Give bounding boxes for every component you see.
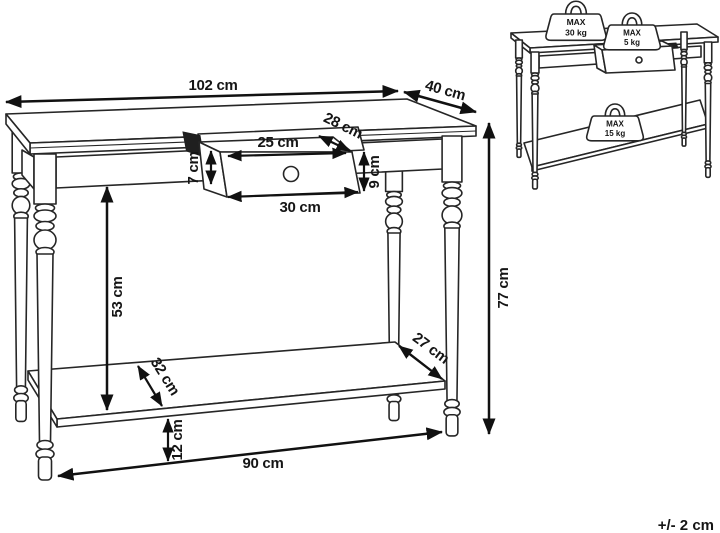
weight-drawer-max: MAX bbox=[623, 28, 641, 37]
front-right-leg bbox=[442, 136, 462, 436]
weight-shelf: MAX 15 kg bbox=[587, 104, 644, 141]
dim-label-total-height: 77 cm bbox=[495, 267, 512, 308]
dim-label-drawer-bottom-width: 30 cm bbox=[279, 199, 320, 216]
dim-label-shelf-floor-height: 12 cm bbox=[169, 419, 186, 460]
tolerance-note: +/- 2 cm bbox=[658, 517, 714, 533]
weight-drawer-value: 5 kg bbox=[624, 38, 640, 47]
weight-shelf-max: MAX bbox=[606, 119, 624, 128]
drawer-knob bbox=[284, 167, 299, 182]
weight-tabletop-max: MAX bbox=[567, 17, 586, 27]
dim-label-between-legs-width: 90 cm bbox=[242, 455, 283, 472]
weight-shelf-value: 15 kg bbox=[605, 129, 626, 138]
inset-back-left-leg bbox=[516, 40, 523, 157]
front-left-leg bbox=[34, 154, 56, 480]
inset-drawer-knob bbox=[636, 57, 642, 63]
lower-shelf bbox=[28, 342, 445, 427]
weight-drawer: MAX 5 kg bbox=[604, 13, 661, 50]
dim-label-drawer-front-height: 9 cm bbox=[366, 156, 383, 189]
dim-label-drawer-top-width: 25 cm bbox=[257, 134, 298, 151]
weight-tabletop: MAX 30 kg bbox=[546, 1, 606, 40]
furniture-dimension-diagram: 102 cm 40 cm 28 cm 25 cm 7 cm 9 cm 30 cm… bbox=[0, 0, 720, 533]
inset-back-right-leg bbox=[681, 32, 687, 146]
dim-label-under-top-clearance: 53 cm bbox=[109, 276, 126, 317]
diagram-canvas: 102 cm 40 cm 28 cm 25 cm 7 cm 9 cm 30 cm… bbox=[0, 0, 720, 533]
load-capacity-inset: MAX 30 kg MAX 5 kg MAX 15 kg bbox=[511, 1, 718, 189]
dim-label-drawer-side-height: 7 cm bbox=[185, 152, 202, 185]
dim-label-top-width: 102 cm bbox=[188, 77, 237, 94]
weight-tabletop-value: 30 kg bbox=[565, 27, 587, 37]
inset-front-left-leg bbox=[531, 52, 539, 189]
inset-front-right-leg bbox=[704, 42, 711, 177]
